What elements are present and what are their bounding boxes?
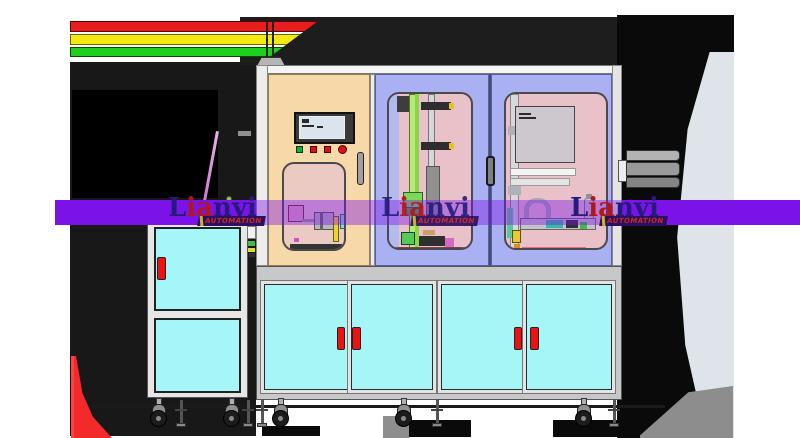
- watermark-logo: Lianyi AUTOMATION: [168, 196, 288, 228]
- red-sail-edge: [71, 356, 74, 438]
- yellow-fixture: [512, 230, 521, 243]
- lower-cabinet-door-2[interactable]: [351, 284, 433, 390]
- lower-cabinet-door-3[interactable]: [441, 284, 524, 390]
- caster-hub: [401, 416, 406, 421]
- actuator-bracket-2: [421, 142, 451, 150]
- foot-arm: [256, 409, 268, 411]
- bottom-dark-assembly: [419, 236, 445, 246]
- watermark-logo: Lianyi AUTOMATION: [570, 196, 690, 228]
- caster-wheel: [146, 398, 172, 432]
- caster-hub: [278, 416, 283, 421]
- pink-base-line: [522, 247, 586, 250]
- side-cabinet-door-top[interactable]: [154, 227, 241, 311]
- actuator-bracket-1: [421, 102, 451, 110]
- watermark-logo: Lianyi AUTOMATION: [381, 196, 501, 228]
- rail-joint: [508, 186, 521, 195]
- cabinet-handle-4[interactable]: [530, 327, 539, 350]
- shelf-bar-bottom: [510, 178, 570, 186]
- rod-tag: [238, 131, 251, 136]
- caster-hub: [156, 416, 161, 421]
- hmi-screen-glyph: [302, 119, 309, 123]
- outfeed-bar-bottom: [626, 177, 680, 188]
- emergency-stop-button[interactable]: [338, 145, 347, 154]
- machine-render-canvas: Lianyi AUTOMATION Lianyi AUTOMATION Lian…: [0, 0, 800, 438]
- side-cabinet-door-bottom[interactable]: [154, 318, 241, 393]
- bracket-tip-yellow: [449, 143, 454, 149]
- orange-dot: [514, 244, 520, 249]
- leveling-foot: [256, 400, 268, 430]
- watermark-subtitle: AUTOMATION: [197, 216, 265, 226]
- foot-rod: [180, 400, 183, 424]
- foot-rod: [247, 400, 250, 424]
- bottom-green-block: [401, 232, 415, 245]
- control-door-handle[interactable]: [357, 152, 364, 185]
- leveling-foot: [431, 400, 443, 430]
- outfeed-bar-top: [626, 150, 680, 161]
- foot-plate: [257, 423, 267, 427]
- tower-pole-line-2: [272, 21, 274, 58]
- foot-rod: [613, 400, 616, 424]
- watermark-subtitle: AUTOMATION: [599, 216, 667, 226]
- connector-dark-bit: [249, 253, 255, 257]
- caster-hub: [229, 416, 234, 421]
- foot-plate: [609, 423, 619, 427]
- foot-arm: [431, 409, 443, 411]
- bottom-tan-bit: [423, 230, 435, 235]
- foot-plate: [243, 423, 253, 427]
- hmi-screen-glyph: [317, 126, 323, 128]
- caster-hub: [581, 416, 586, 421]
- side-cabinet-handle[interactable]: [157, 257, 166, 280]
- cabinet-handle-3[interactable]: [514, 327, 522, 350]
- foot-plate: [176, 423, 186, 427]
- bracket-tip-yellow: [449, 103, 454, 109]
- tower-segment-yellow: [70, 34, 318, 45]
- foot-rod: [261, 400, 264, 424]
- foot-arm: [175, 409, 187, 411]
- fixture-pink-dot: [294, 238, 299, 242]
- tower-segment-red: [70, 21, 318, 32]
- plate-label-line: [519, 113, 531, 115]
- push-button-red-2[interactable]: [324, 146, 331, 153]
- foot-plate: [432, 423, 442, 427]
- foot-rod: [436, 400, 439, 424]
- middle-door-handle[interactable]: [486, 156, 495, 186]
- connector-yellow-bit: [248, 248, 255, 252]
- machine-frame-left-post: [256, 65, 268, 266]
- leveling-foot: [175, 400, 187, 430]
- outfeed-bar-middle: [626, 162, 680, 176]
- push-button-green[interactable]: [296, 146, 303, 153]
- fixture-base-rail: [290, 244, 342, 250]
- caster-wheel: [268, 398, 294, 432]
- caster-wheel: [391, 398, 417, 432]
- bottom-base-strip: [393, 247, 471, 250]
- cabinet-handle-1[interactable]: [337, 327, 345, 350]
- push-button-red-1[interactable]: [310, 146, 317, 153]
- foot-arm: [242, 409, 254, 411]
- leveling-foot: [242, 400, 254, 430]
- leveling-foot: [608, 400, 620, 430]
- watermark-subtitle: AUTOMATION: [410, 216, 478, 226]
- bottom-pink-bit: [445, 238, 454, 247]
- hmi-screen-glyph: [302, 125, 314, 127]
- tower-pole-line-1: [266, 21, 268, 58]
- left-shadow-core: [72, 90, 218, 198]
- shelf-bar-top: [510, 168, 576, 176]
- caster-wheel: [571, 398, 597, 432]
- foot-arm: [608, 409, 620, 411]
- connector-green-bit: [248, 241, 255, 246]
- plate-label-line: [519, 117, 536, 119]
- cabinet-handle-2[interactable]: [352, 327, 361, 350]
- machine-frame-top: [256, 65, 622, 74]
